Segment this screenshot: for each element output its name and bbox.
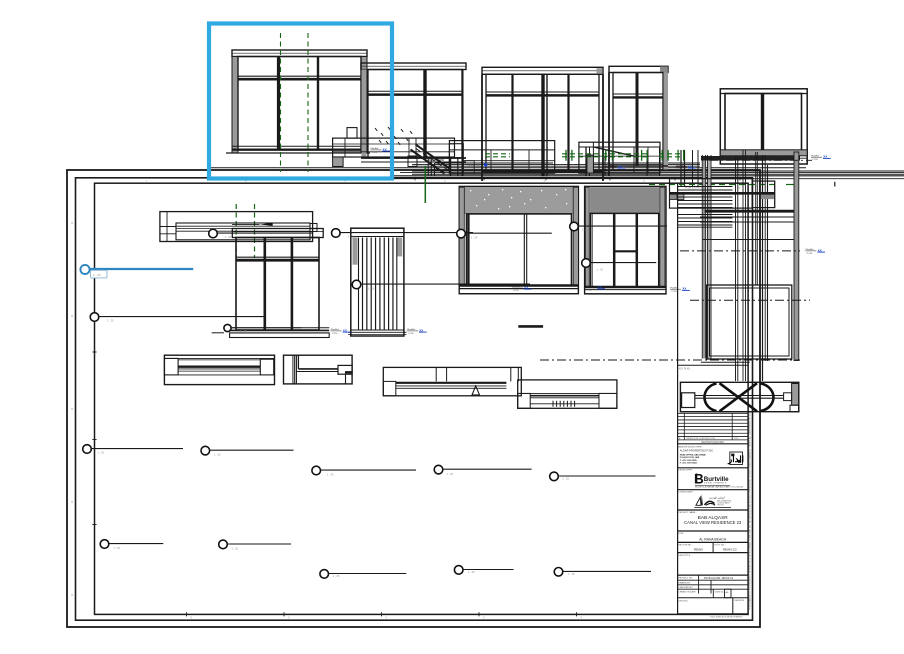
svg-text:SITE :: SITE : [678, 533, 684, 535]
svg-text:1 : 25: 1 : 25 [114, 546, 121, 550]
svg-text:D E V E L O P M E N T S: D E V E L O P M E N T S [704, 483, 727, 485]
svg-text:DWG No.: DWG No. [715, 592, 725, 594]
svg-text:P-250: P-250 [587, 290, 593, 292]
svg-text:P-250: P-250 [807, 253, 813, 255]
svg-text:VILLA NO.6, AL NAHYAN CAMP, AB: VILLA NO.6, AL NAHYAN CAMP, ABU DHABI T … [695, 486, 743, 489]
svg-text:1 : 25: 1 : 25 [582, 228, 589, 232]
svg-text:B: B [71, 407, 73, 411]
svg-text:THIS DRAWING IS THE PROPERTY O: THIS DRAWING IS THE PROPERTY OF BURTVILL… [749, 411, 752, 610]
svg-text:KEY PLAN :: KEY PLAN : [679, 367, 692, 370]
svg-text:B: B [71, 500, 73, 504]
svg-text:250 BALQASR, REIN3-C2: 250 BALQASR, REIN3-C2 [704, 577, 734, 580]
svg-text:1 : 25: 1 : 25 [471, 235, 478, 239]
svg-text:1 : 25: 1 : 25 [240, 329, 247, 333]
svg-text:أبوظبي للهندسة: أبوظبي للهندسة [709, 496, 725, 499]
svg-text:1 : 25: 1 : 25 [446, 472, 453, 476]
svg-text:REVISION: REVISION [734, 600, 744, 602]
svg-text:1 : 25: 1 : 25 [333, 574, 340, 578]
svg-text:PROJECT NAME :: PROJECT NAME : [678, 511, 697, 514]
svg-text:B: B [71, 314, 73, 318]
svg-text:P.O.BOX 51133, UAE: P.O.BOX 51133, UAE [680, 456, 700, 459]
svg-text:B: B [71, 221, 73, 225]
svg-text:P-250: P-250 [408, 333, 414, 335]
svg-text:AL RAHA BEACH: AL RAHA BEACH [699, 537, 726, 541]
svg-text:1 : 25: 1 : 25 [327, 473, 334, 477]
svg-text:P-250: P-250 [607, 169, 613, 171]
svg-text:1 : 25: 1 : 25 [348, 234, 355, 238]
svg-text:P-250: P-250 [332, 333, 338, 335]
svg-text:HEAD OFFICE, ABU DHABI: HEAD OFFICE, ABU DHABI [680, 454, 706, 457]
svg-text:REVISION RECORD: REVISION RECORD [701, 441, 724, 444]
svg-text:ISSUED FOR CONSTRUCTION: ISSUED FOR CONSTRUCTION [686, 438, 715, 440]
svg-text:DRAWN BY:: DRAWN BY: [678, 582, 691, 585]
svg-text:B: B [71, 593, 73, 597]
svg-text:PlanRef Sect: PlanRef Sect [467, 164, 480, 167]
svg-text:PROJECT NO.: PROJECT NO. [678, 577, 693, 579]
svg-text:الدار: الدار [727, 454, 744, 465]
svg-text:1 : 25: 1 : 25 [232, 546, 239, 550]
svg-text:MASTER DEVELOPER :: MASTER DEVELOPER : [678, 446, 703, 449]
svg-text:P-250: P-250 [672, 291, 678, 293]
svg-text:F +971 2 810 5554: F +971 2 810 5554 [680, 461, 698, 464]
svg-text:1 : 25: 1 : 25 [562, 477, 569, 481]
svg-text:1 : 25: 1 : 25 [98, 451, 105, 455]
svg-text:DWG NO.: DWG NO. [678, 600, 688, 602]
svg-text:REIN3: REIN3 [694, 548, 703, 552]
svg-text:P-250: P-250 [677, 169, 683, 171]
svg-text:1 : 25: 1 : 25 [368, 286, 375, 290]
svg-text:CREATION DATE:: CREATION DATE: [678, 591, 696, 594]
svg-text:ALDAR PROPERTIES PJSC: ALDAR PROPERTIES PJSC [680, 449, 714, 453]
svg-text:REIN3-C2: REIN3-C2 [723, 548, 737, 552]
svg-text:1 : 25: 1 : 25 [597, 267, 604, 271]
svg-text:DWG TITLE :: DWG TITLE : [678, 555, 691, 557]
svg-text:SECTOR NO :: SECTOR NO : [678, 544, 693, 546]
svg-text:©2016, BURTVILLE DEVELOPMENTS: ©2016, BURTVILLE DEVELOPMENTS [710, 615, 744, 618]
svg-text:1 : 25: 1 : 25 [107, 319, 114, 323]
svg-text:1 : 25: 1 : 25 [93, 273, 101, 277]
svg-text:1 : 25: 1 : 25 [214, 453, 221, 457]
svg-text:DEVELOPER :: DEVELOPER : [678, 469, 693, 471]
svg-text:1 : 25: 1 : 25 [468, 570, 475, 574]
svg-text:1 : 25: 1 : 25 [568, 572, 575, 576]
svg-text:P-250: P-250 [372, 152, 378, 154]
svg-text:1 : 25: 1 : 25 [225, 235, 232, 239]
svg-text:CANAL VIEW RESIDENCE 23: CANAL VIEW RESIDENCE 23 [684, 520, 742, 525]
svg-text:PLOT NO :: PLOT NO : [715, 544, 726, 546]
svg-text:CONSULTANT :: CONSULTANT : [678, 490, 694, 493]
svg-text:GROUP: GROUP [717, 505, 724, 507]
svg-text:B: B [694, 472, 704, 487]
svg-text:P-250: P-250 [812, 159, 818, 161]
svg-text:P-250: P-250 [513, 290, 519, 292]
